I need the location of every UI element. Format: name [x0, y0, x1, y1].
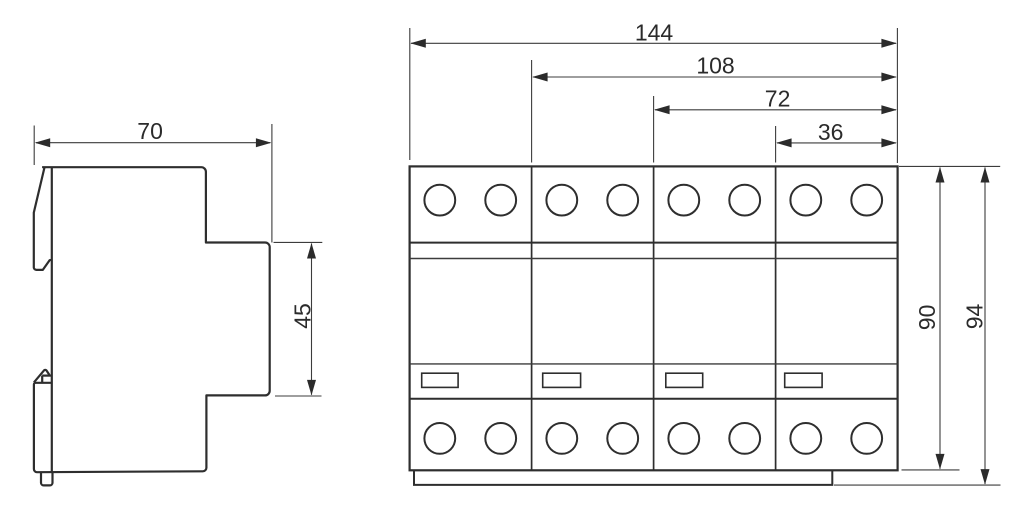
svg-text:144: 144	[635, 19, 674, 45]
svg-text:45: 45	[290, 303, 316, 329]
svg-text:72: 72	[765, 86, 791, 112]
svg-text:108: 108	[696, 53, 734, 79]
svg-text:36: 36	[818, 119, 844, 145]
svg-text:94: 94	[962, 304, 988, 330]
svg-text:70: 70	[137, 118, 163, 144]
svg-text:90: 90	[914, 305, 940, 331]
